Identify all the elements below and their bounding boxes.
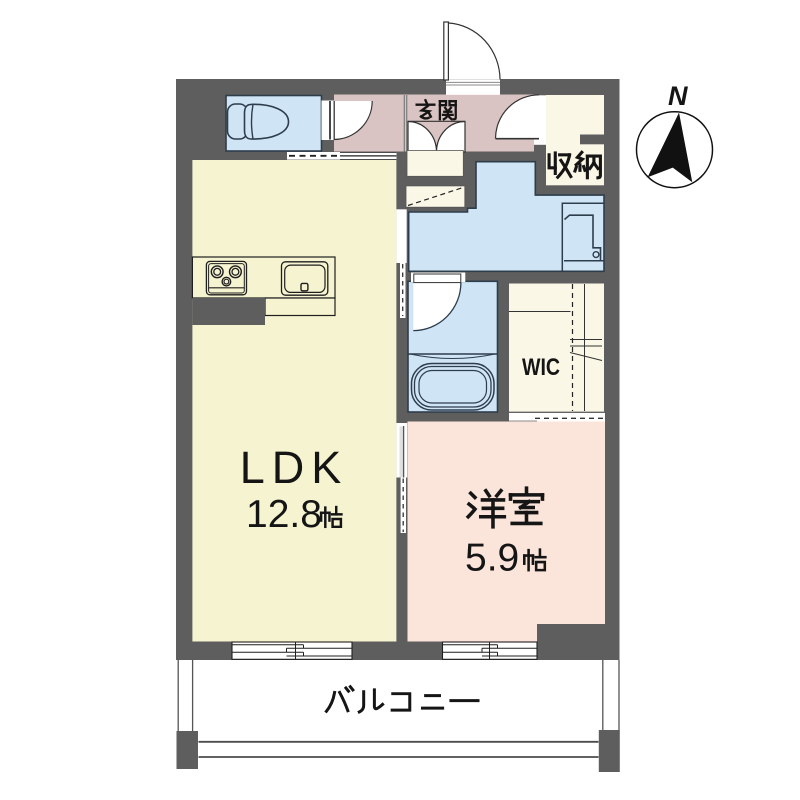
svg-text:5.9: 5.9 [465, 537, 519, 580]
svg-text:LDK: LDK [240, 442, 349, 493]
svg-text:12.8: 12.8 [246, 493, 322, 536]
svg-text:WIC: WIC [522, 354, 560, 381]
svg-text:N: N [668, 81, 688, 111]
